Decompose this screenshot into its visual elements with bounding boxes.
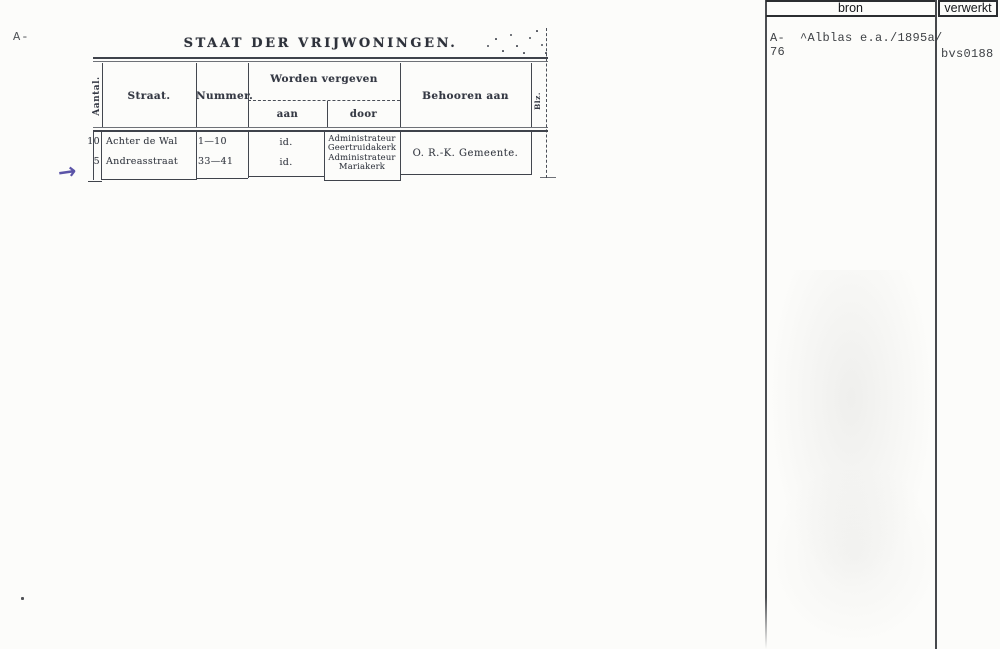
bron-value-line2: 76	[770, 46, 943, 60]
verwerkt-header-label: verwerkt	[940, 2, 996, 15]
bron-header-label: bron	[766, 2, 935, 15]
scan-shading	[775, 470, 935, 640]
verwerkt-header-cell: verwerkt	[938, 0, 998, 17]
bron-value-line1: A- ^Alblas e.a./1895a/	[770, 32, 943, 46]
scan-shading	[768, 270, 934, 590]
panel-border-line	[765, 0, 767, 649]
bron-value: A- ^Alblas e.a./1895a/ 76	[770, 32, 943, 59]
bron-header-cell: bron	[766, 0, 935, 17]
panel-border-line	[935, 0, 937, 649]
index-panel: bron verwerkt A- ^Alblas e.a./1895a/ 76 …	[0, 0, 1000, 649]
verwerkt-value: bvs0188	[941, 47, 994, 61]
scanned-index-card: A- → STAAT DER VRIJWONINGEN. Aantal.	[0, 0, 1000, 649]
